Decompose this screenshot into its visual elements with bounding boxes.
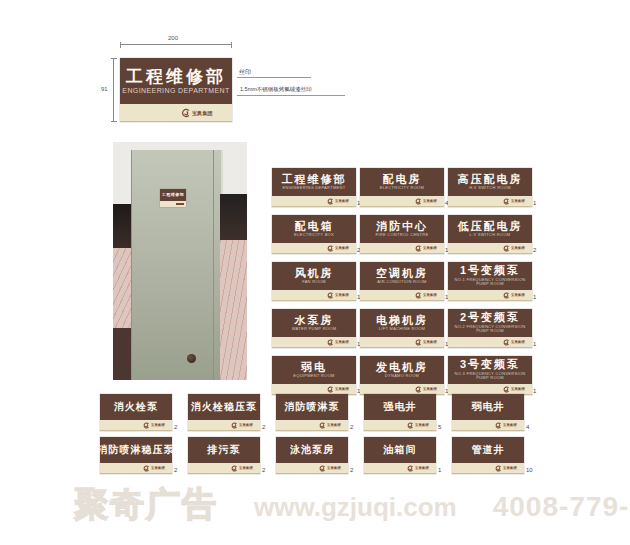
sign-item: 消防中心 FIRE CONTROL CENTRE 宝奥集团 1 [360, 215, 448, 254]
sign-plate: 强电井 宝奥集团 [364, 394, 436, 431]
swirl-logo-icon [327, 386, 334, 393]
brand-logo-text: 宝奥集团 [335, 340, 349, 343]
sign-logo-strip: 宝奥集团 [360, 243, 444, 254]
brand-logo-text: 宝奥集团 [423, 199, 437, 202]
sign-plate: 工程维修部 ENGINEERING DEPARTMENT 宝奥集团 [272, 168, 356, 207]
brand-logo: 宝奥集团 [143, 422, 167, 429]
swirl-logo-icon [503, 245, 510, 252]
sign-logo-strip: 宝奥集团 [452, 420, 524, 431]
sign-quantity: 2 [262, 424, 265, 430]
brand-logo: 宝奥集团 [415, 292, 439, 299]
sign-quantity: 2 [174, 424, 177, 430]
sign-title: 消火栓稳压泵 [191, 402, 257, 413]
installation-photo: 工程维修部 [113, 142, 247, 380]
photo-floor-left [113, 328, 131, 380]
sign-item: 高压配电房 H.V SWITCH ROOM 宝奥集团 1 [448, 168, 536, 207]
sign-plate: 高压配电房 H.V SWITCH ROOM 宝奥集团 [448, 168, 532, 207]
brand-logo: 宝奥集团 [503, 292, 527, 299]
sign-subtitle: NO.1 FREQUENCY CONVERSION PUMP ROOM [450, 278, 530, 287]
watermark-phone: 4008-779-020 [493, 491, 630, 523]
sign-title: 风机房 [295, 268, 334, 280]
sign-logo-strip: 宝奥集团 [100, 420, 172, 431]
brand-logo-text: 宝奥集团 [335, 293, 349, 296]
swirl-logo-icon [327, 198, 334, 205]
brand-logo-text: 宝奥集团 [503, 466, 517, 469]
brand-logo: 宝奥集团 [503, 386, 527, 393]
sign-item: 消防喷淋稳压泵 宝奥集团 2 [100, 437, 188, 474]
brand-logo-text: 宝奥集团 [335, 387, 349, 390]
sign-title: 泳池泵房 [290, 445, 334, 456]
sign-quantity: 2 [350, 424, 353, 430]
brand-logo: 宝奥集团 [327, 386, 351, 393]
sign-item: 消火栓泵 宝奥集团 2 [100, 394, 188, 431]
sign-subtitle: FAN ROOM [302, 280, 326, 284]
photo-door-sign-title: 工程维修部 [162, 193, 185, 197]
spec-sign-title: 工程维修部 [126, 68, 226, 86]
sign-logo-strip: 宝奥集团 [276, 463, 348, 474]
callout-silkprint-label: 丝印 [239, 69, 251, 75]
brand-logo-text: 宝奥集团 [423, 340, 437, 343]
sign-subtitle: DYNAMO ROOM [385, 374, 419, 378]
sign-quantity: 2 [174, 467, 177, 473]
sign-logo-strip: 宝奥集团 [448, 290, 532, 301]
sign-quantity: 1 [533, 294, 536, 300]
swirl-logo-icon [415, 245, 422, 252]
swirl-logo-icon [407, 465, 414, 472]
sign-title: 1号变频泵 [460, 265, 520, 277]
width-dimension-line [120, 44, 232, 45]
sign-logo-strip: 宝奥集团 [452, 463, 524, 474]
brand-logo-text: 宝奥集团 [415, 423, 429, 426]
sign-subtitle: NO.3 FREQUENCY CONVERSION PUMP ROOM [450, 372, 530, 381]
sign-subtitle: H.V SWITCH ROOM [469, 186, 511, 190]
brand-logo-text: 宝奥集团 [327, 466, 341, 469]
callout-material-line [237, 95, 345, 96]
sign-plate: 消防中心 FIRE CONTROL CENTRE 宝奥集团 [360, 215, 444, 254]
brand-logo: 宝奥集团 [319, 465, 343, 472]
sign-logo-strip: 宝奥集团 [360, 290, 444, 301]
swirl-logo-icon [327, 292, 334, 299]
sign-logo-strip: 宝奥集团 [100, 463, 172, 474]
swirl-logo-icon [503, 292, 510, 299]
sign-item: 弱电 EQUIPMENT ROOM 宝奥集团 1 [272, 356, 360, 395]
swirl-logo-icon [143, 422, 150, 429]
photo-dark-panel-left [113, 204, 131, 248]
sign-item: 弱电井 宝奥集团 4 [452, 394, 540, 431]
swirl-logo-icon [143, 465, 150, 472]
swirl-logo-icon [415, 386, 422, 393]
brand-logo-text: 宝奥集团 [327, 423, 341, 426]
sign-plate: 3号变频泵 NO.3 FREQUENCY CONVERSION PUMP ROO… [448, 356, 532, 395]
sign-item: 配电房 ELECTRICITY ROOM 宝奥集团 4 [360, 168, 448, 207]
sign-title: 高压配电房 [458, 174, 523, 186]
swirl-logo-icon [231, 422, 238, 429]
sign-item: 工程维修部 ENGINEERING DEPARTMENT 宝奥集团 1 [272, 168, 360, 207]
sign-plate: 空调机房 AIR-CONDITION ROOM 宝奥集团 [360, 262, 444, 301]
sign-item: 消防喷淋泵 宝奥集团 2 [276, 394, 364, 431]
sign-plate: 消火栓稳压泵 宝奥集团 [188, 394, 260, 431]
brand-logo: 宝奥集团 [231, 422, 255, 429]
swirl-logo-icon [503, 339, 510, 346]
sign-subtitle: EQUIPMENT ROOM [293, 374, 334, 378]
sign-title: 空调机房 [376, 268, 428, 280]
brand-logo-text: 宝奥集团 [151, 423, 165, 426]
sign-logo-strip: 宝奥集团 [272, 290, 356, 301]
brand-logo: 宝奥集团 [495, 422, 519, 429]
spec-sign-face: 工程维修部 ENGINEERING DEPARTMENT [120, 58, 232, 104]
sign-logo-strip: 宝奥集团 [272, 196, 356, 207]
brand-logo: 宝奥集团 [495, 465, 519, 472]
sign-plate: 风机房 FAN ROOM 宝奥集团 [272, 262, 356, 301]
swirl-logo-icon [495, 422, 502, 429]
sign-logo-strip: 宝奥集团 [360, 196, 444, 207]
sign-title: 消防中心 [376, 221, 428, 233]
brand-logo-text: 宝奥集团 [335, 199, 349, 202]
brand-logo: 宝奥集团 [143, 465, 167, 472]
swirl-logo-icon [319, 465, 326, 472]
spec-sign-subtitle: ENGINEERING DEPARTMENT [122, 87, 229, 95]
brand-logo-text: 宝奥集团 [511, 293, 525, 296]
watermark-url: www.gzjuqi.com [254, 492, 457, 523]
photo-door-sign: 工程维修部 [160, 189, 186, 207]
sign-subtitle: LIFT MACHINE ROOM [379, 327, 425, 331]
sign-plate: 管道井 宝奥集团 [452, 437, 524, 474]
height-dimension-label: 91 [101, 86, 108, 92]
photo-door-seam [213, 150, 214, 380]
brand-logo: 宝奥集团 [415, 198, 439, 205]
width-dimension-label: 200 [168, 35, 178, 41]
swirl-logo-icon [231, 465, 238, 472]
swirl-logo-icon [327, 339, 334, 346]
main-sign-grid: 工程维修部 ENGINEERING DEPARTMENT 宝奥集团 1 [272, 168, 536, 395]
height-dimension-line [113, 58, 114, 122]
sign-title: 消火栓泵 [114, 402, 158, 413]
brand-logo-text: 宝奥集团 [415, 466, 429, 469]
brand-logo-text: 宝奥集团 [151, 466, 165, 469]
sign-subtitle: WATER PUMP ROOM [292, 327, 337, 331]
brand-logo-text: 宝奥集团 [511, 387, 525, 390]
sign-subtitle: ELECTRICITY ROOM [380, 186, 424, 190]
brand-logo-text: 宝奥集团 [423, 246, 437, 249]
sign-plate: 水泵房 WATER PUMP ROOM 宝奥集团 [272, 309, 356, 348]
sign-item: 油箱间 宝奥集团 1 [364, 437, 452, 474]
sign-plate: 2号变频泵 NO.2 FREQUENCY CONVERSION PUMP ROO… [448, 309, 532, 348]
brand-logo-text: 宝奥集团 [511, 199, 525, 202]
sign-logo-strip: 宝奥集团 [364, 463, 436, 474]
photo-door-knob [187, 354, 196, 363]
watermark: 聚奇广告 www.gzjuqi.com 4008-779-020 [74, 482, 630, 528]
sign-plate: 排污泵 宝奥集团 [188, 437, 260, 474]
sign-subtitle: AIR-CONDITION ROOM [377, 280, 426, 284]
sign-logo-strip: 宝奥集团 [448, 337, 532, 348]
sign-plate: 发电机房 DYNAMO ROOM 宝奥集团 [360, 356, 444, 395]
sign-item: 2号变频泵 NO.2 FREQUENCY CONVERSION PUMP ROO… [448, 309, 536, 348]
sign-logo-strip: 宝奥集团 [448, 196, 532, 207]
sign-subtitle: FIRE CONTROL CENTRE [376, 233, 429, 237]
brand-logo: 宝奥集团 [503, 339, 527, 346]
sign-logo-strip: 宝奥集团 [448, 243, 532, 254]
sign-item: 排污泵 宝奥集团 2 [188, 437, 276, 474]
sign-title: 弱电 [301, 362, 327, 374]
sign-logo-strip: 宝奥集团 [272, 337, 356, 348]
swirl-logo-icon [327, 245, 334, 252]
sign-logo-strip: 宝奥集团 [272, 243, 356, 254]
sign-subtitle: L.V SWITCH ROOM [470, 233, 511, 237]
sign-title: 消防喷淋泵 [285, 402, 340, 413]
brand-logo: 宝奥集团 [231, 465, 255, 472]
sign-subtitle: ENGINEERING DEPARTMENT [283, 186, 346, 190]
sign-logo-strip: 宝奥集团 [188, 420, 260, 431]
brand-logo-text: 宝奥集团 [503, 423, 517, 426]
sign-title: 发电机房 [376, 362, 428, 374]
swirl-logo-icon [503, 198, 510, 205]
brand-logo-text: 宝奥集团 [423, 387, 437, 390]
sign-title: 3号变频泵 [460, 359, 520, 371]
sign-plate: 配电房 ELECTRICITY ROOM 宝奥集团 [360, 168, 444, 207]
swirl-logo-icon [415, 292, 422, 299]
brand-logo: 宝奥集团 [415, 245, 439, 252]
brand-logo: 宝奥集团 [327, 339, 351, 346]
sign-item: 管道井 宝奥集团 10 [452, 437, 540, 474]
swirl-logo-icon [181, 108, 191, 118]
sign-title: 2号变频泵 [460, 312, 520, 324]
brand-logo-text: 宝奥集团 [239, 423, 253, 426]
sign-title: 工程维修部 [282, 174, 347, 186]
sign-quantity: 1 [533, 341, 536, 347]
swirl-logo-icon [415, 198, 422, 205]
sign-quantity: 1 [438, 467, 441, 473]
photo-door-sign-logo [176, 203, 184, 205]
callout-silkprint-line [237, 77, 311, 78]
sign-subtitle: ELECTRICITY BOX [294, 233, 334, 237]
sign-title: 配电房 [383, 174, 422, 186]
sign-item: 泳池泵房 宝奥集团 2 [276, 437, 364, 474]
sign-title: 强电井 [384, 402, 417, 413]
sign-quantity: 2 [533, 247, 536, 253]
sign-item: 电梯机房 LIFT MACHINE ROOM 宝奥集团 1 [360, 309, 448, 348]
sign-plate: 油箱间 宝奥集团 [364, 437, 436, 474]
small-sign-grid: 消火栓泵 宝奥集团 2 [100, 394, 540, 474]
sign-item: 消火栓稳压泵 宝奥集团 2 [188, 394, 276, 431]
sign-plate: 消火栓泵 宝奥集团 [100, 394, 172, 431]
sign-item: 强电井 宝奥集团 5 [364, 394, 452, 431]
sign-quantity: 10 [526, 467, 533, 473]
photo-dark-panel-right [220, 194, 247, 240]
sign-logo-strip: 宝奥集团 [188, 463, 260, 474]
spec-sign-plate: 工程维修部 ENGINEERING DEPARTMENT 宝奥集团 [120, 58, 232, 122]
brand-logo-text: 宝奥集团 [511, 246, 525, 249]
spec-sign-logo-strip: 宝奥集团 [120, 104, 232, 122]
photo-door [131, 150, 223, 380]
brand-logo: 宝奥集团 [415, 386, 439, 393]
sign-title: 消防喷淋稳压泵 [98, 445, 175, 456]
sign-plate: 弱电 EQUIPMENT ROOM 宝奥集团 [272, 356, 356, 395]
sign-title: 油箱间 [384, 445, 417, 456]
swirl-logo-icon [503, 386, 510, 393]
brand-logo: 宝奥集团 [503, 198, 527, 205]
brand-logo: 宝奥集团 [319, 422, 343, 429]
sign-plate: 泳池泵房 宝奥集团 [276, 437, 348, 474]
sign-item: 空调机房 AIR-CONDITION ROOM 宝奥集团 1 [360, 262, 448, 301]
sign-quantity: 2 [350, 467, 353, 473]
sign-plate: 弱电井 宝奥集团 [452, 394, 524, 431]
watermark-brand: 聚奇广告 [74, 482, 218, 528]
sign-title: 电梯机房 [376, 315, 428, 327]
sign-plate: 消防喷淋泵 宝奥集团 [276, 394, 348, 431]
sign-quantity: 1 [533, 200, 536, 206]
brand-logo-text: 宝奥集团 [239, 466, 253, 469]
sign-item: 发电机房 DYNAMO ROOM 宝奥集团 1 [360, 356, 448, 395]
swirl-logo-icon [415, 339, 422, 346]
sign-title: 管道井 [472, 445, 505, 456]
sign-title: 水泵房 [295, 315, 334, 327]
callout-material-label: 1.5mm不锈钢板烤氟碳漆丝印 [240, 87, 312, 93]
swirl-logo-icon [407, 422, 414, 429]
sign-plate: 配电箱 ELECTRICITY BOX 宝奥集团 [272, 215, 356, 254]
brand-logo: 宝奥集团 [327, 292, 351, 299]
sign-item: 3号变频泵 NO.3 FREQUENCY CONVERSION PUMP ROO… [448, 356, 536, 395]
sign-title: 排污泵 [208, 445, 241, 456]
sign-subtitle: NO.2 FREQUENCY CONVERSION PUMP ROOM [450, 325, 530, 334]
brand-logo-text: 宝奥集团 [511, 340, 525, 343]
sign-plate: 消防喷淋稳压泵 宝奥集团 [100, 437, 172, 474]
sign-plate: 低压配电房 L.V SWITCH ROOM 宝奥集团 [448, 215, 532, 254]
brand-logo: 宝奥集团 [503, 245, 527, 252]
swirl-logo-icon [495, 465, 502, 472]
brand-logo: 宝奥集团 [407, 422, 431, 429]
sign-item: 风机房 FAN ROOM 宝奥集团 1 [272, 262, 360, 301]
sign-title: 弱电井 [472, 402, 505, 413]
sign-quantity: 5 [438, 424, 441, 430]
brand-logo: 宝奥集团 [407, 465, 431, 472]
sign-item: 低压配电房 L.V SWITCH ROOM 宝奥集团 2 [448, 215, 536, 254]
sign-title: 配电箱 [295, 221, 334, 233]
sign-quantity: 4 [526, 424, 529, 430]
signage-proof-sheet: 200 91 工程维修部 ENGINEERING DEPARTMENT 宝奥集团… [0, 0, 630, 545]
brand-logo: 宝奥集团 [181, 108, 216, 118]
sign-item: 配电箱 ELECTRICITY BOX 宝奥集团 20 [272, 215, 360, 254]
brand-logo-text: 宝奥集团 [423, 293, 437, 296]
sign-title: 低压配电房 [458, 221, 523, 233]
photo-marble-wall-right [220, 240, 247, 380]
sign-logo-strip: 宝奥集团 [276, 420, 348, 431]
sign-logo-strip: 宝奥集团 [360, 337, 444, 348]
brand-logo: 宝奥集团 [327, 198, 351, 205]
sign-item: 水泵房 WATER PUMP ROOM 宝奥集团 1 [272, 309, 360, 348]
brand-logo: 宝奥集团 [415, 339, 439, 346]
brand-logo-text: 宝奥集团 [335, 246, 349, 249]
brand-logo-text: 宝奥集团 [192, 110, 212, 115]
sign-plate: 电梯机房 LIFT MACHINE ROOM 宝奥集团 [360, 309, 444, 348]
brand-logo: 宝奥集团 [327, 245, 351, 252]
sign-quantity: 2 [262, 467, 265, 473]
swirl-logo-icon [319, 422, 326, 429]
sign-logo-strip: 宝奥集团 [364, 420, 436, 431]
sign-item: 1号变频泵 NO.1 FREQUENCY CONVERSION PUMP ROO… [448, 262, 536, 301]
sign-plate: 1号变频泵 NO.1 FREQUENCY CONVERSION PUMP ROO… [448, 262, 532, 301]
